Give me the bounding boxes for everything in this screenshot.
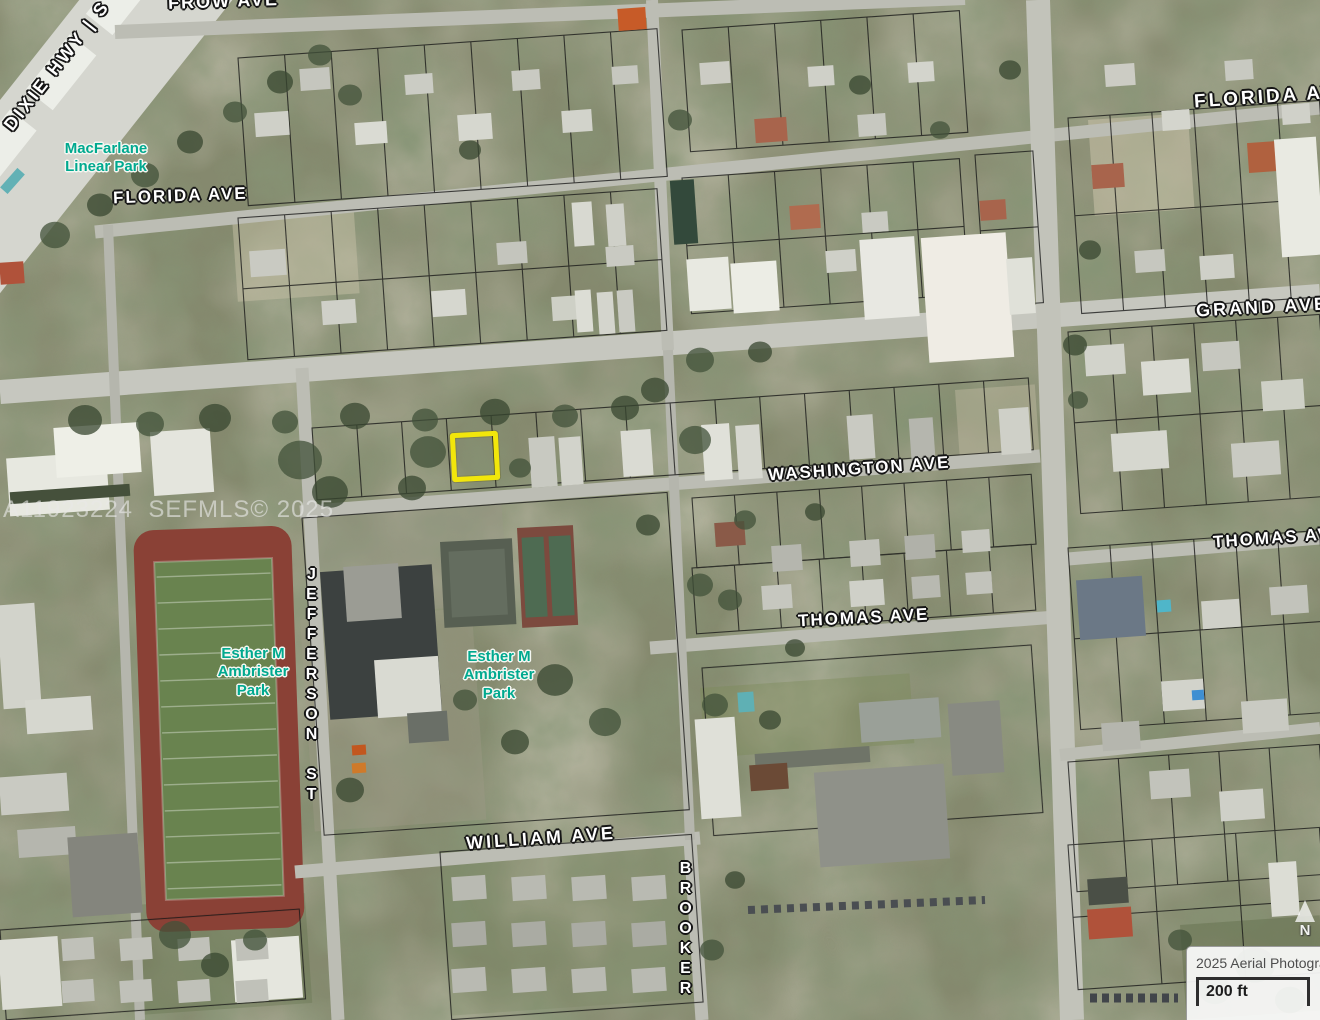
highlighted-parcel-outline [450, 431, 500, 482]
attribution-label: 2025 Aerial Photography [1196, 955, 1320, 971]
scale-label: 200 ft [1199, 980, 1307, 1001]
aerial-map[interactable]: FROW AVE DIXIE HWY | S FLORIDA AVE FLORI… [0, 0, 1320, 1020]
scale-bar: 200 ft [1196, 977, 1310, 1006]
attribution-box: 2025 Aerial Photography 200 ft [1186, 946, 1320, 1020]
north-arrow: N [1292, 900, 1318, 939]
north-arrow-icon [1295, 900, 1315, 922]
aerial-imagery [0, 0, 1320, 1020]
north-arrow-label: N [1292, 922, 1318, 939]
